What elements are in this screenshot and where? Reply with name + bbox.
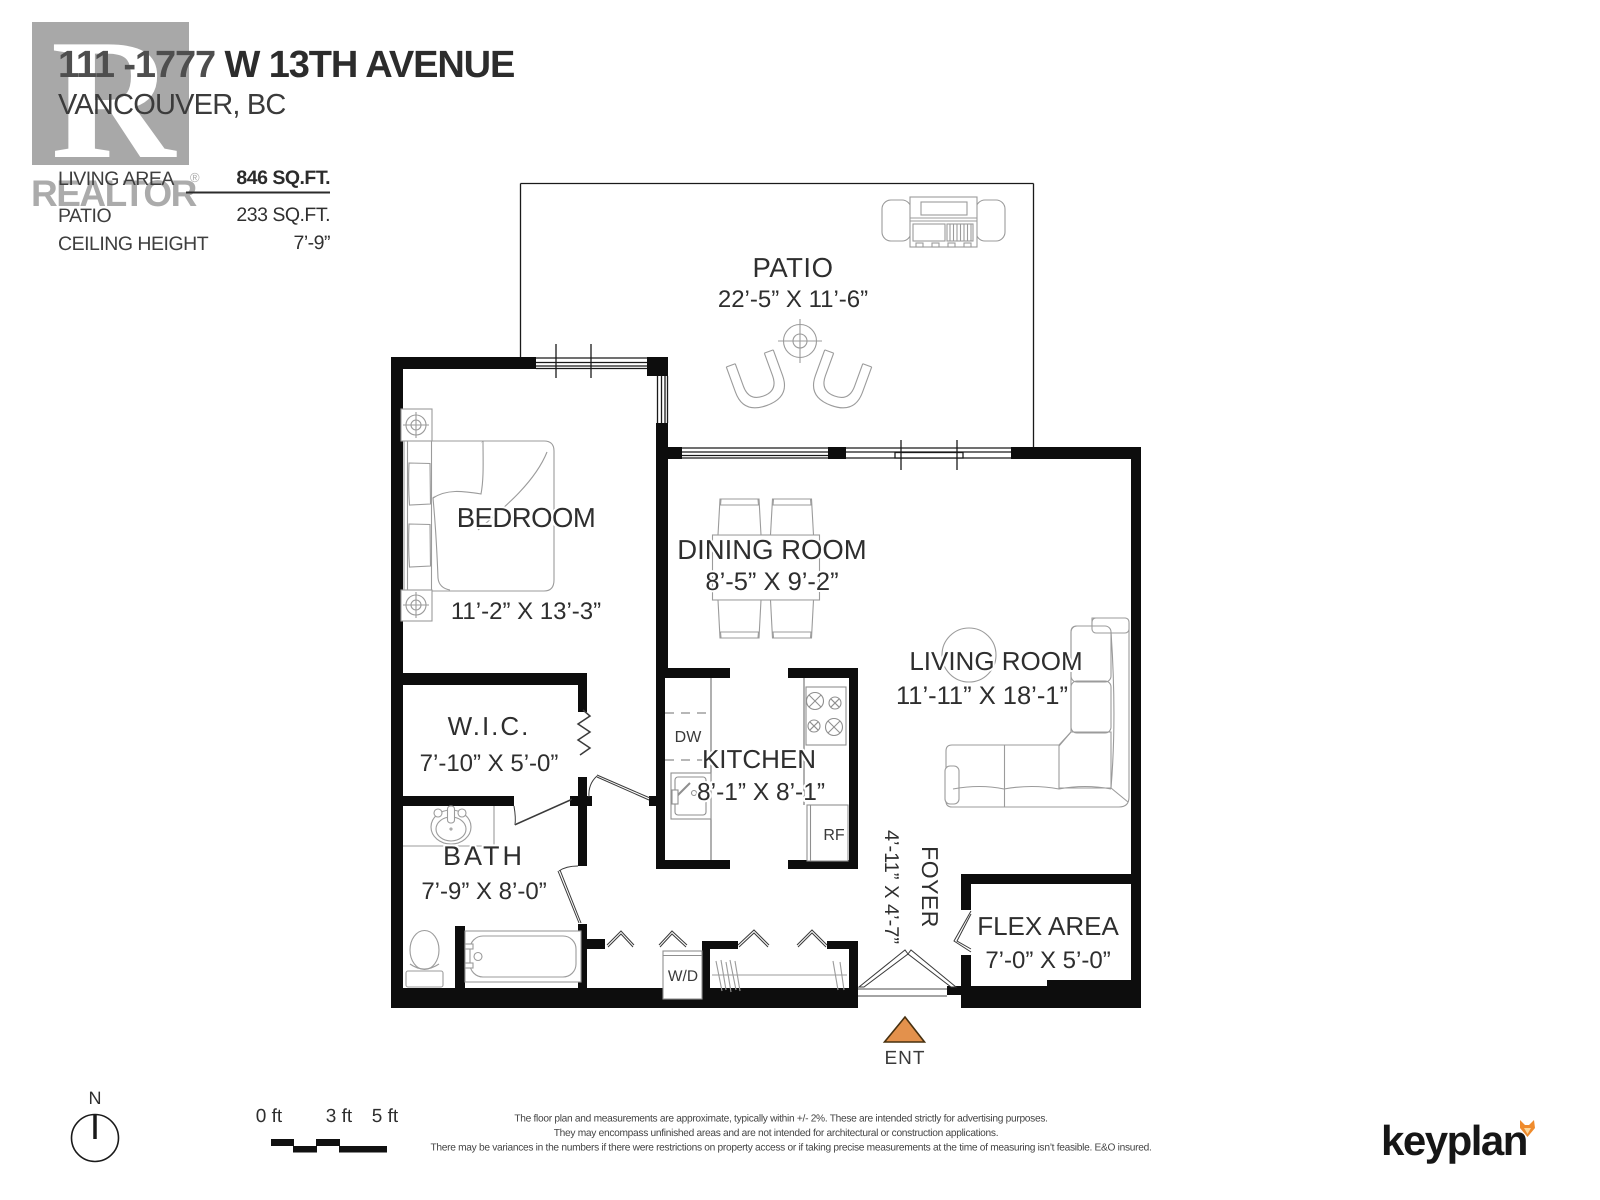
svg-text:4’-11” X 4’-7”: 4’-11” X 4’-7” — [880, 830, 902, 944]
svg-text:The floor plan and measurement: The floor plan and measurements are appr… — [514, 1114, 1047, 1125]
svg-text:111 -1777 W 13TH AVENUE: 111 -1777 W 13TH AVENUE — [58, 44, 514, 86]
svg-text:7’-0” X 5’-0”: 7’-0” X 5’-0” — [985, 947, 1110, 974]
svg-text:DW: DW — [675, 729, 703, 746]
svg-text:FLEX AREA: FLEX AREA — [977, 911, 1119, 941]
svg-text:W.I.C.: W.I.C. — [448, 711, 531, 741]
svg-text:846 SQ.FT.: 846 SQ.FT. — [236, 167, 330, 189]
svg-text:VANCOUVER, BC: VANCOUVER, BC — [58, 89, 286, 121]
svg-text:PATIO: PATIO — [753, 252, 834, 283]
svg-text:CEILING HEIGHT: CEILING HEIGHT — [58, 233, 209, 255]
svg-text:DINING ROOM: DINING ROOM — [677, 534, 866, 565]
svg-text:ENT: ENT — [885, 1048, 926, 1069]
svg-text:7’-9” X 8’-0”: 7’-9” X 8’-0” — [421, 878, 546, 905]
svg-text:®: ® — [190, 170, 200, 185]
svg-text:LIVING AREA: LIVING AREA — [58, 168, 174, 190]
svg-text:KITCHEN: KITCHEN — [702, 744, 816, 774]
svg-text:3 ft: 3 ft — [326, 1106, 353, 1127]
svg-text:0 ft: 0 ft — [256, 1106, 283, 1127]
svg-text:FOYER: FOYER — [917, 846, 943, 928]
svg-text:N: N — [89, 1088, 102, 1108]
svg-text:5 ft: 5 ft — [372, 1106, 399, 1127]
svg-text:7’-10” X 5’-0”: 7’-10” X 5’-0” — [420, 750, 559, 777]
svg-text:BATH: BATH — [443, 841, 525, 871]
svg-text:8’-5” X 9’-2”: 8’-5” X 9’-2” — [705, 568, 838, 596]
svg-text:11’-11” X 18’-1”: 11’-11” X 18’-1” — [896, 682, 1068, 710]
svg-text:W/D: W/D — [668, 968, 698, 985]
svg-text:They may encompass unfinished: They may encompass unfinished areas and … — [554, 1128, 999, 1139]
svg-text:PATIO: PATIO — [58, 205, 111, 227]
svg-text:keyplan: keyplan — [1381, 1117, 1527, 1164]
svg-text:22’-5” X 11’-6”: 22’-5” X 11’-6” — [718, 286, 868, 313]
svg-text:RF: RF — [823, 827, 845, 844]
svg-text:BEDROOM: BEDROOM — [457, 502, 596, 533]
svg-text:233 SQ.FT.: 233 SQ.FT. — [236, 204, 330, 226]
svg-text:There may be variances in the: There may be variances in the numbers if… — [430, 1143, 1151, 1154]
svg-text:11’-2” X 13’-3”: 11’-2” X 13’-3” — [451, 598, 601, 625]
svg-text:8’-1” X 8’-1”: 8’-1” X 8’-1” — [697, 779, 825, 806]
svg-text:LIVING ROOM: LIVING ROOM — [909, 646, 1082, 676]
svg-text:7’-9”: 7’-9” — [293, 232, 330, 254]
